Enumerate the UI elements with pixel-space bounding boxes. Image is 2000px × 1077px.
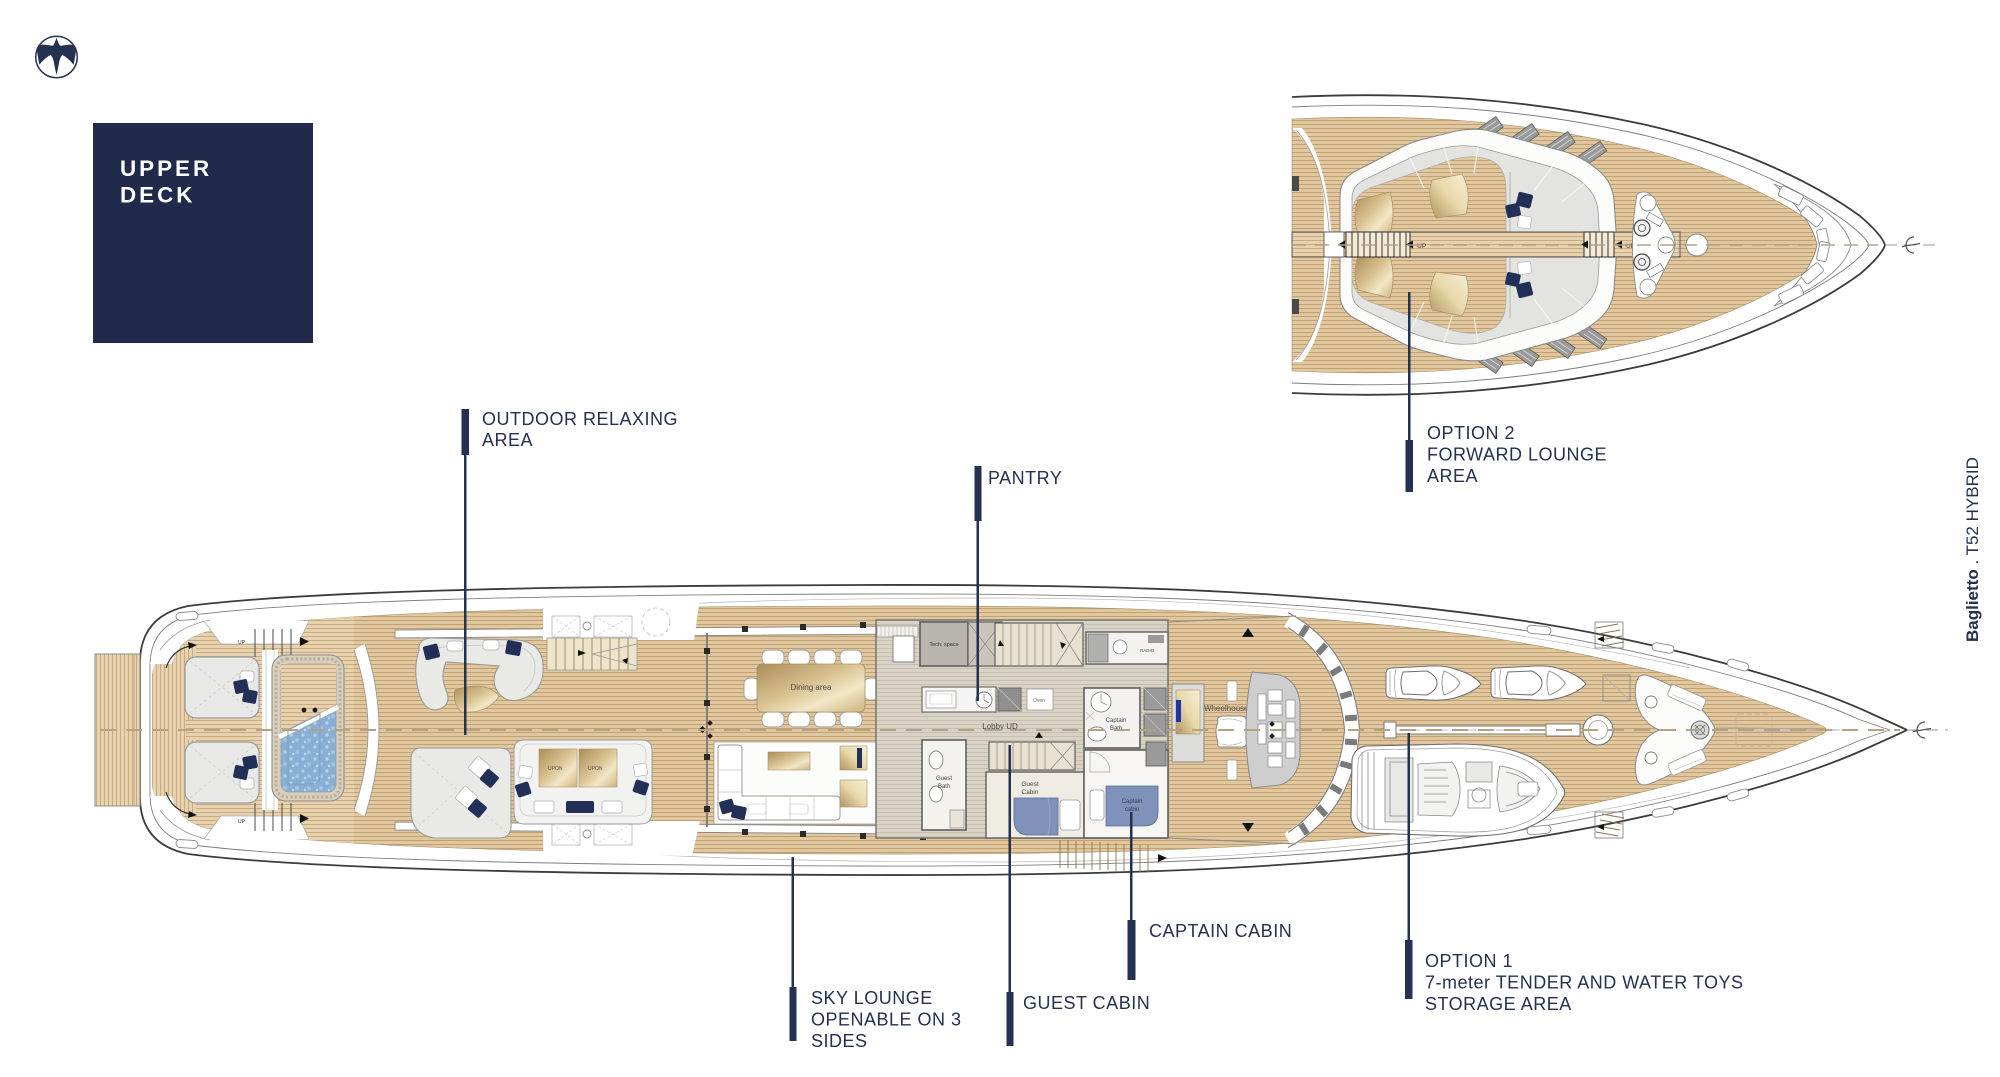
svg-text:OPENABLE ON 3: OPENABLE ON 3 xyxy=(811,1010,962,1030)
svg-text:Bath: Bath xyxy=(938,784,950,790)
svg-text:Guest: Guest xyxy=(1021,781,1039,788)
svg-text:Captain: Captain xyxy=(1122,799,1143,805)
svg-text:SIDES: SIDES xyxy=(811,1031,868,1051)
svg-text:Guest: Guest xyxy=(936,776,952,782)
svg-text:SKY LOUNGE: SKY LOUNGE xyxy=(811,988,933,1008)
svg-text:PANTRY: PANTRY xyxy=(988,468,1062,488)
svg-text:OPTION 1: OPTION 1 xyxy=(1425,951,1513,971)
svg-text:UP: UP xyxy=(238,640,246,646)
svg-text:Baglietto . T52 HYBRID: Baglietto . T52 HYBRID xyxy=(1963,457,1982,642)
svg-text:UPON: UPON xyxy=(548,766,563,772)
svg-text:Captain: Captain xyxy=(1106,718,1127,724)
svg-text:RADIO: RADIO xyxy=(1140,648,1155,653)
svg-text:UPON: UPON xyxy=(588,766,603,772)
svg-text:7-meter TENDER AND WATER TOYS: 7-meter TENDER AND WATER TOYS xyxy=(1425,973,1744,993)
svg-text:DECK: DECK xyxy=(120,183,195,208)
svg-text:Dining area: Dining area xyxy=(791,683,832,692)
svg-text:STORAGE AREA: STORAGE AREA xyxy=(1425,994,1572,1014)
svg-text:Wheelhouse: Wheelhouse xyxy=(1204,704,1249,713)
svg-text:UP: UP xyxy=(1417,243,1426,250)
svg-text:AREA: AREA xyxy=(1427,466,1478,486)
svg-text:OPTION 2: OPTION 2 xyxy=(1427,423,1515,443)
svg-text:AREA: AREA xyxy=(482,430,533,450)
svg-text:FORWARD LOUNGE: FORWARD LOUNGE xyxy=(1427,445,1607,465)
svg-text:Tech. space: Tech. space xyxy=(929,642,958,648)
svg-text:CAPTAIN CABIN: CAPTAIN CABIN xyxy=(1149,921,1292,941)
svg-text:Oven: Oven xyxy=(1033,698,1045,704)
svg-text:OUTDOOR RELAXING: OUTDOOR RELAXING xyxy=(482,409,678,429)
svg-text:Cabin: Cabin xyxy=(1022,789,1039,796)
svg-text:UPPER: UPPER xyxy=(120,156,212,181)
svg-text:UP: UP xyxy=(238,819,246,825)
svg-text:GUEST CABIN: GUEST CABIN xyxy=(1023,993,1150,1013)
